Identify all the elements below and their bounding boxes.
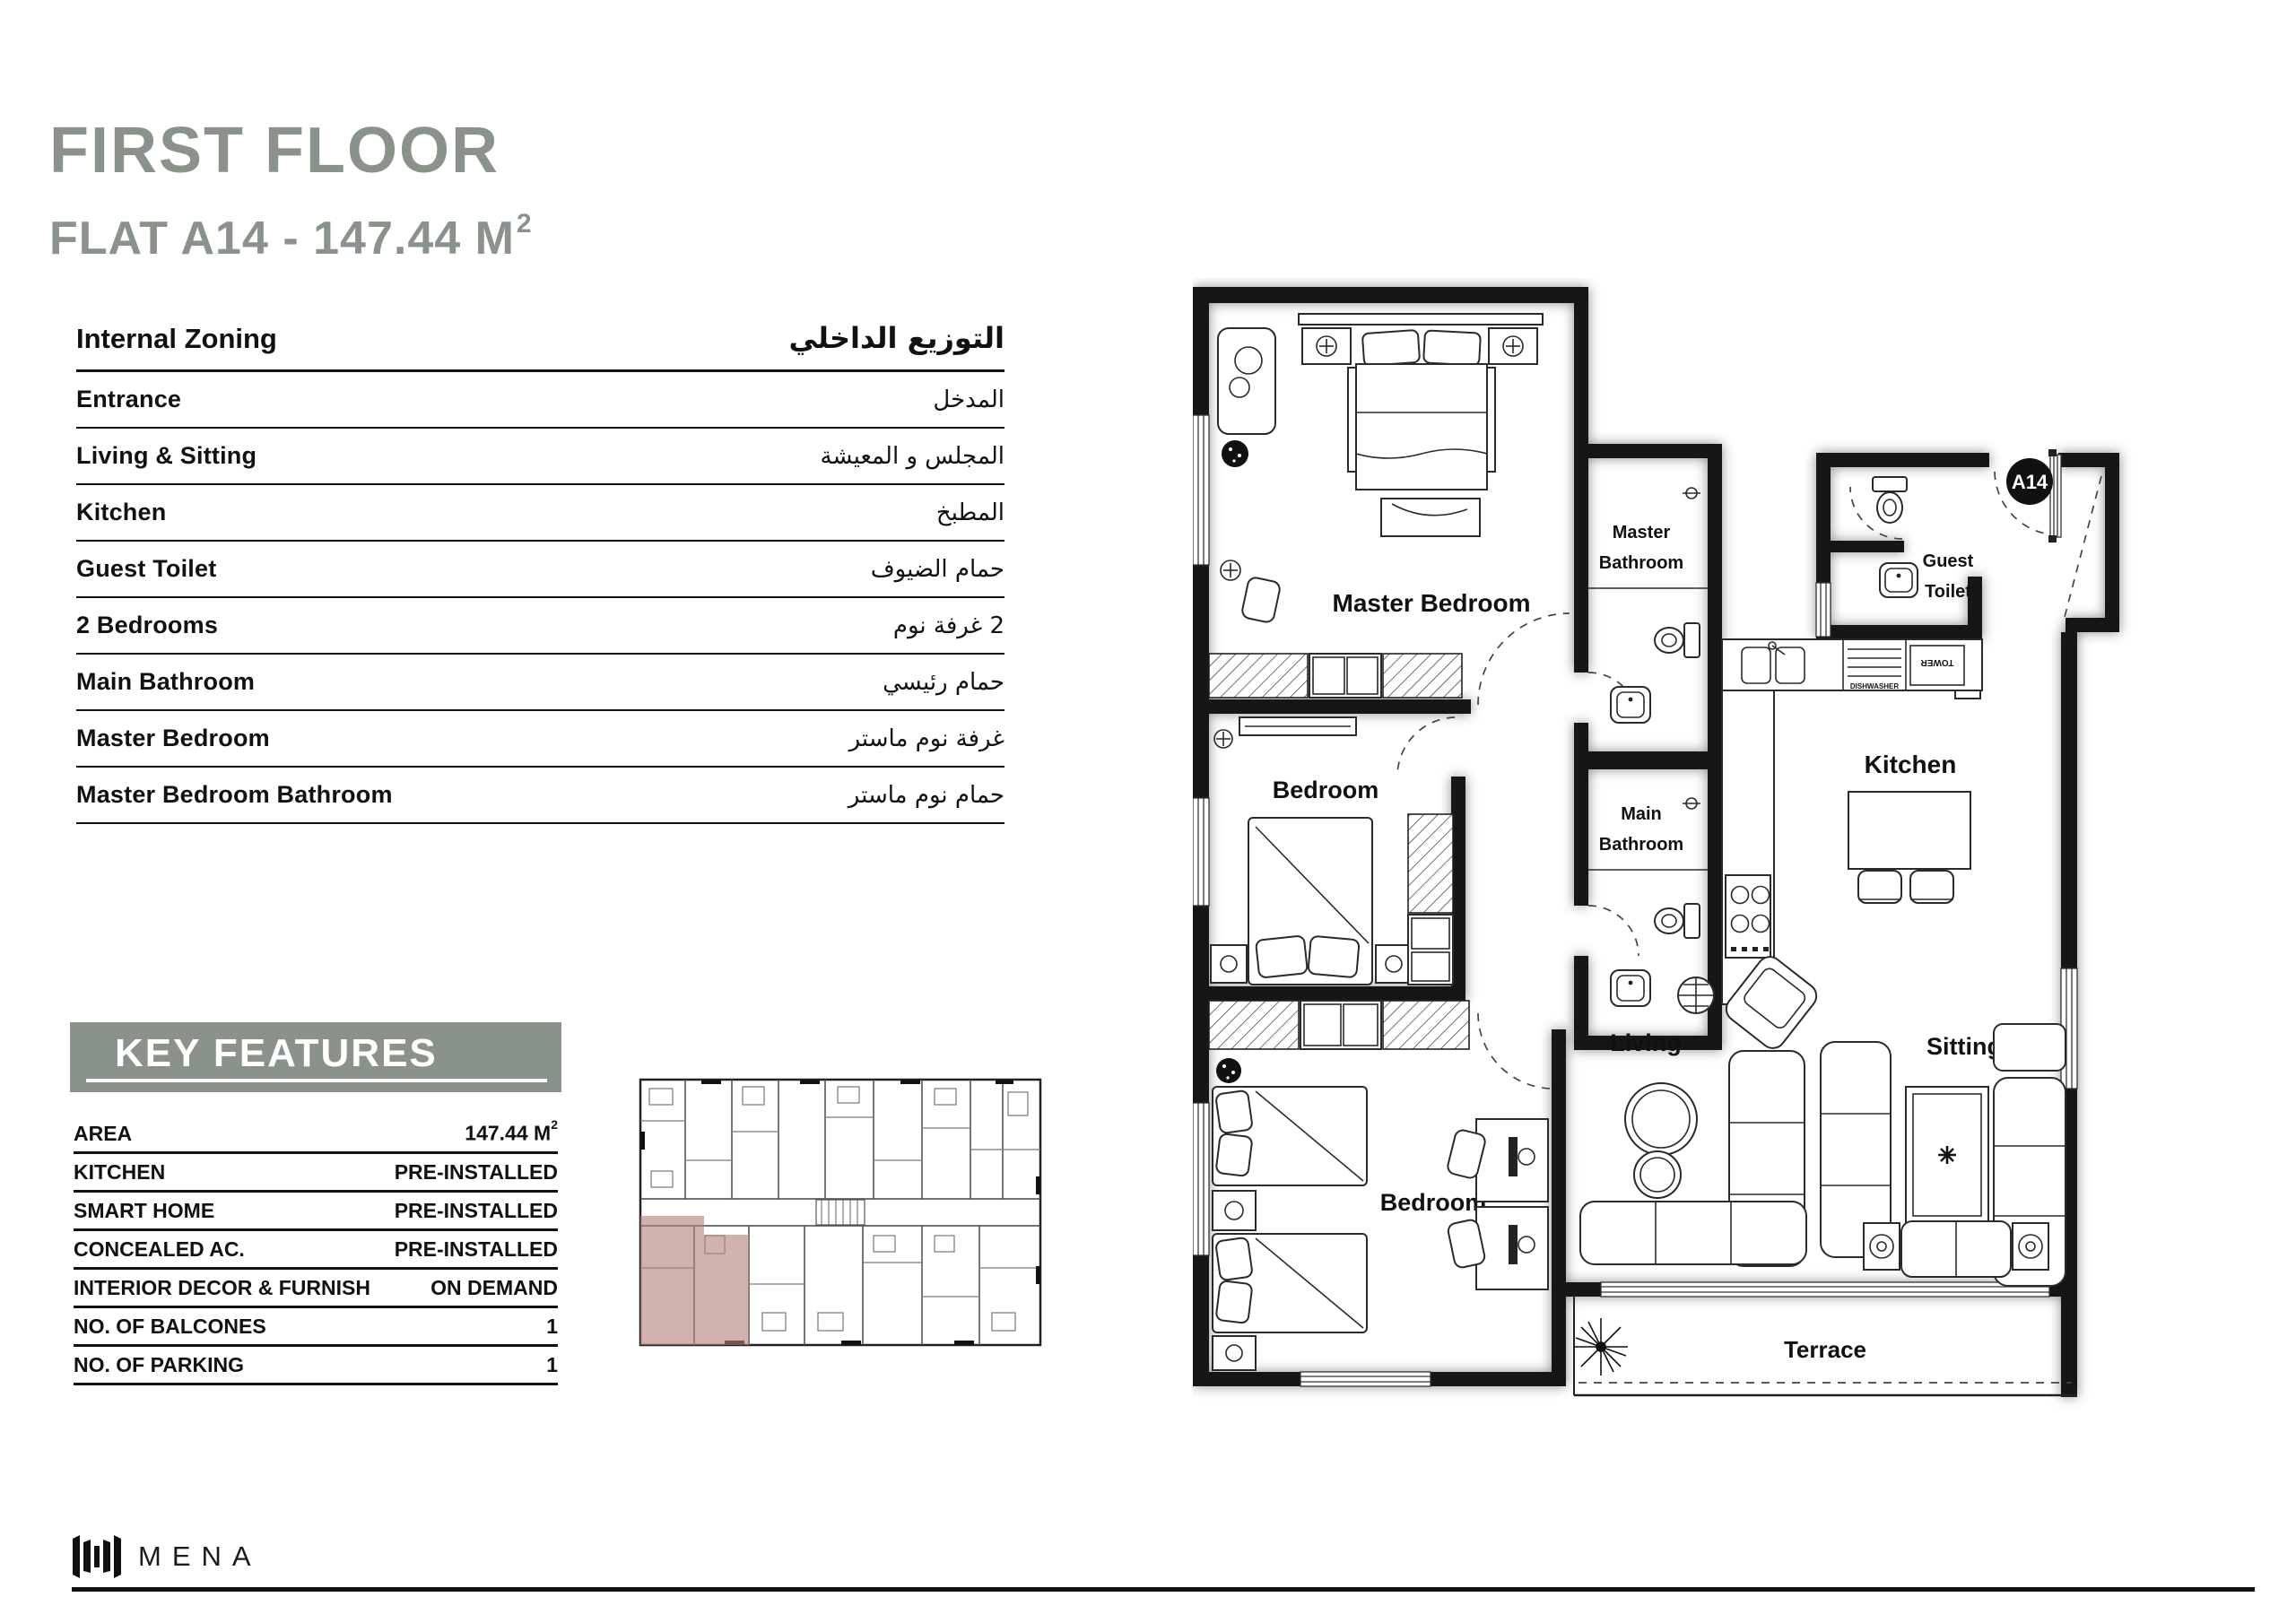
svg-text:DISHWASHER: DISHWASHER: [1850, 682, 1899, 690]
stove: [1726, 875, 1770, 958]
bed: [1213, 1087, 1367, 1185]
svg-text:Master: Master: [1613, 523, 1671, 542]
brand-name: MENA: [138, 1541, 262, 1573]
plant-circle: [1216, 1058, 1241, 1083]
plant-circle: [1222, 440, 1248, 467]
sink: [1611, 687, 1650, 723]
feature-row-smart-home: SMART HOME PRE-INSTALLED: [74, 1193, 558, 1231]
page-subtitle-text: FLAT A14 - 147.44 M: [49, 213, 515, 265]
zoning-row-entrance: Entrance المدخل: [76, 372, 1004, 429]
double-bed: [1348, 330, 1495, 490]
feature-row-parking: NO. OF PARKING 1: [74, 1347, 558, 1385]
room-master-bathroom: Master Bathroom: [1588, 488, 1708, 723]
page-title: FIRST FLOOR: [49, 118, 500, 183]
internal-zoning-header: Internal Zoning التوزيع الداخلي: [76, 321, 1004, 372]
feature-row-interior-decor: INTERIOR DECOR & FURNISH ON DEMAND: [74, 1270, 558, 1308]
toilet: [1873, 477, 1907, 523]
l-sofa: [1580, 1051, 1806, 1266]
svg-text:Living: Living: [1610, 1029, 1682, 1056]
nightstand: [1213, 1191, 1256, 1230]
nightstand: [1213, 1336, 1256, 1370]
mini-floor-plan: [639, 1078, 1042, 1347]
side-table: [1678, 977, 1714, 1013]
entry-door-leaf: [2048, 449, 2061, 542]
zoning-row-master-bedroom: Master Bedroom غرفة نوم ماستر: [76, 711, 1004, 768]
page-subtitle: FLAT A14 - 147.44 M2: [49, 215, 531, 262]
room-main-bathroom: Main Bathroom: [1588, 798, 1708, 1006]
highlighted-unit: [640, 1216, 749, 1345]
bed: [1248, 818, 1372, 985]
loveseat: [1864, 1221, 2048, 1277]
plant: [1574, 1318, 1628, 1376]
key-features-title: KEY FEATURES: [115, 1031, 438, 1076]
toilet: [1655, 904, 1700, 938]
room-kitchen: DISHWASHER TOWER Kitchen: [1722, 639, 1982, 1004]
room-master-bedroom: Master Bedroom: [1209, 314, 1543, 698]
svg-text:Guest: Guest: [1923, 551, 1974, 571]
unit-badge: A14: [2006, 458, 2053, 505]
kitchen-table: [1848, 792, 1970, 903]
room-bedroom-lower: Bedroom: [1209, 1001, 1548, 1370]
wardrobe: [1209, 654, 1462, 698]
zoning-header-ar: التوزيع الداخلي: [789, 321, 1004, 355]
svg-text:A14: A14: [2012, 471, 2048, 493]
feature-row-balconies: NO. OF BALCONES 1: [74, 1308, 558, 1347]
footer-rule: [72, 1587, 2255, 1592]
room-terrace: Terrace: [1574, 1297, 2077, 1395]
coffee-table: [1625, 1083, 1697, 1198]
room-label: Master Bedroom: [1333, 589, 1531, 617]
room-bedroom-middle: Bedroom: [1211, 717, 1453, 985]
feature-row-kitchen: KITCHEN PRE-INSTALLED: [74, 1154, 558, 1193]
brand-footer: MENA: [72, 1532, 262, 1582]
rug: [1906, 1087, 1988, 1223]
zoning-row-guest-toilet: Guest Toilet حمام الضيوف: [76, 542, 1004, 598]
sink: [1611, 970, 1650, 1006]
svg-text:Terrace: Terrace: [1784, 1336, 1866, 1363]
svg-text:Toilet: Toilet: [1925, 582, 1971, 602]
room-sitting: Sitting: [1864, 1024, 2066, 1286]
svg-text:Bedroom: Bedroom: [1273, 777, 1379, 803]
wardrobe: [1209, 1001, 1469, 1049]
room-guest-toilet: Guest Toilet: [1873, 477, 1974, 602]
svg-text:Sitting: Sitting: [1926, 1033, 2002, 1060]
zoning-row-master-bathroom: Master Bedroom Bathroom حمام نوم ماستر: [76, 768, 1004, 824]
zoning-header-en: Internal Zoning: [76, 323, 277, 355]
svg-text:TOWER: TOWER: [1920, 657, 1954, 667]
desk: [1447, 1207, 1548, 1289]
key-features-header: KEY FEATURES: [70, 1022, 561, 1092]
bed: [1213, 1234, 1367, 1332]
nightstand: [1211, 945, 1247, 983]
sliding-door: [1601, 1282, 2049, 1297]
zoning-row-bedrooms: 2 Bedrooms 2 غرفة نوم: [76, 598, 1004, 655]
key-features-table: AREA 147.44 M2 KITCHEN PRE-INSTALLED SMA…: [74, 1115, 558, 1385]
svg-text:Main: Main: [1621, 804, 1662, 824]
sink: [1880, 563, 1918, 597]
bench: [1381, 499, 1480, 536]
internal-zoning-table: Internal Zoning التوزيع الداخلي Entrance…: [76, 321, 1004, 824]
svg-text:Kitchen: Kitchen: [1865, 751, 1957, 778]
page-subtitle-sup: 2: [517, 209, 533, 239]
svg-text:Bathroom: Bathroom: [1599, 835, 1683, 855]
zoning-row-main-bathroom: Main Bathroom حمام رئيسي: [76, 655, 1004, 711]
svg-text:Bathroom: Bathroom: [1599, 553, 1683, 573]
zoning-row-living-sitting: Living & Sitting المجلس و المعيشة: [76, 429, 1004, 485]
nightstand: [1376, 945, 1412, 983]
feature-row-area: AREA 147.44 M2: [74, 1115, 558, 1154]
zoning-row-kitchen: Kitchen المطبخ: [76, 485, 1004, 542]
toilet: [1655, 623, 1700, 657]
brand-logo-icon: [72, 1532, 122, 1582]
wardrobe: [1408, 814, 1453, 985]
svg-text:Bedroom: Bedroom: [1380, 1189, 1487, 1216]
feature-row-concealed-ac: CONCEALED AC. PRE-INSTALLED: [74, 1231, 558, 1270]
chair: [1241, 577, 1282, 623]
floor-plan: Master Bedroom Master Bathroom Main Bath…: [1193, 278, 2188, 1417]
